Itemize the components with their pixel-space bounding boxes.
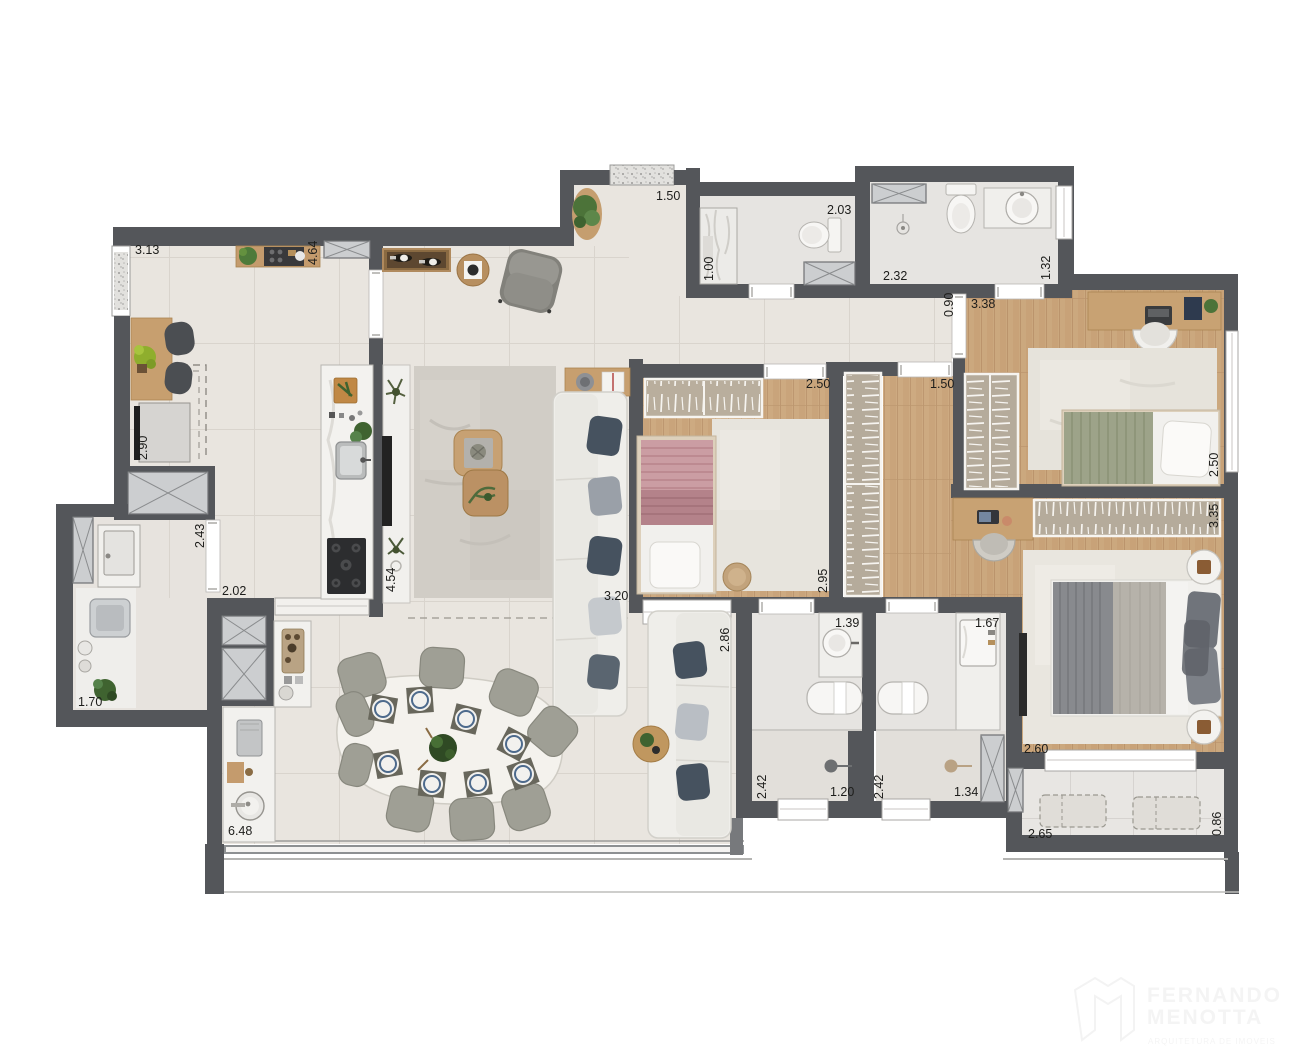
svg-text:1.32: 1.32: [1039, 256, 1053, 280]
svg-text:1.50: 1.50: [930, 377, 954, 391]
svg-text:1.39: 1.39: [835, 616, 859, 630]
svg-text:2.42: 2.42: [755, 775, 769, 799]
svg-text:1.67: 1.67: [975, 616, 999, 630]
svg-text:0.86: 0.86: [1210, 812, 1224, 836]
svg-text:2.32: 2.32: [883, 269, 907, 283]
svg-text:2.03: 2.03: [827, 203, 851, 217]
svg-text:2.50: 2.50: [1207, 453, 1221, 477]
svg-text:1.34: 1.34: [954, 785, 978, 799]
svg-text:3.20: 3.20: [604, 589, 628, 603]
svg-text:MENOTTA: MENOTTA: [1147, 1006, 1263, 1029]
svg-text:0.90: 0.90: [942, 293, 956, 317]
svg-text:1.20: 1.20: [830, 785, 854, 799]
svg-text:1.70: 1.70: [78, 695, 102, 709]
svg-text:2.42: 2.42: [872, 775, 886, 799]
svg-text:2.95: 2.95: [816, 569, 830, 593]
svg-text:2.02: 2.02: [222, 584, 246, 598]
svg-text:3.13: 3.13: [135, 243, 159, 257]
svg-text:ARQUITETURA DE IMOVEIS: ARQUITETURA DE IMOVEIS: [1148, 1037, 1276, 1046]
svg-text:2.50: 2.50: [806, 377, 830, 391]
svg-text:2.86: 2.86: [718, 628, 732, 652]
svg-text:6.48: 6.48: [228, 824, 252, 838]
svg-text:3.38: 3.38: [971, 297, 995, 311]
svg-text:2.43: 2.43: [193, 524, 207, 548]
svg-text:2.65: 2.65: [1028, 827, 1052, 841]
svg-text:FERNANDO: FERNANDO: [1147, 984, 1282, 1007]
svg-text:4.54: 4.54: [384, 568, 398, 592]
svg-text:2.60: 2.60: [1024, 742, 1048, 756]
svg-text:1.50: 1.50: [656, 189, 680, 203]
svg-text:2.90: 2.90: [136, 436, 150, 460]
svg-text:3.35: 3.35: [1207, 504, 1221, 528]
svg-text:1.00: 1.00: [702, 257, 716, 281]
svg-text:4.64: 4.64: [306, 241, 320, 265]
